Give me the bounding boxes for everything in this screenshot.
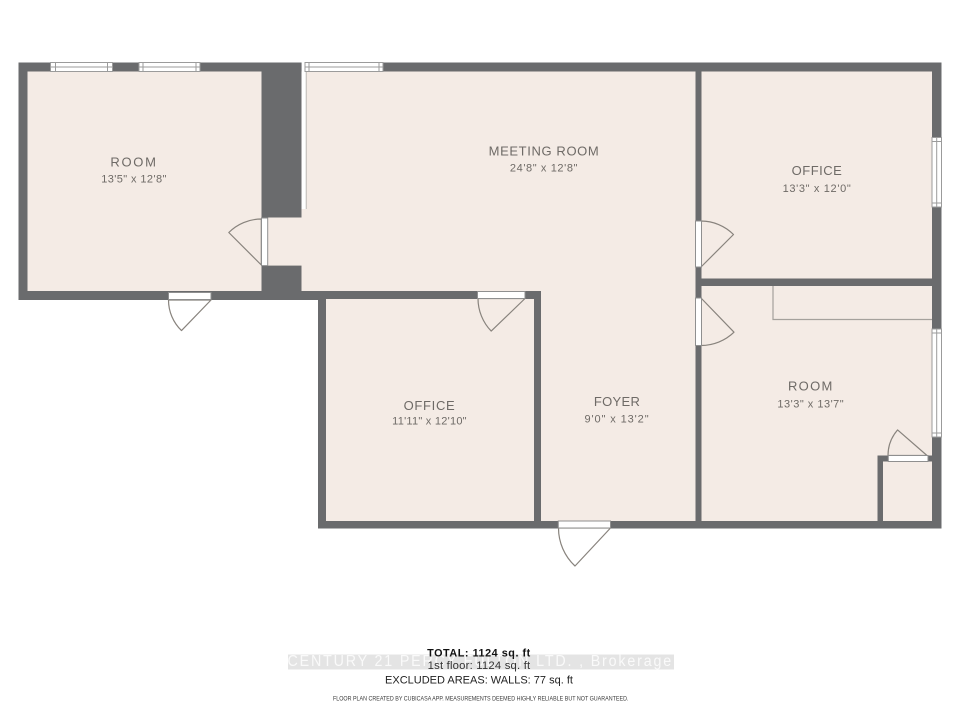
svg-text:13'5" x 12'8": 13'5" x 12'8" [101,173,167,185]
svg-text:OFFICE: OFFICE [792,163,843,178]
svg-text:11'11" x 12'10": 11'11" x 12'10" [392,415,467,427]
svg-text:TOTAL: 1124 sq. ft: TOTAL: 1124 sq. ft [427,647,531,659]
svg-text:ROOM: ROOM [788,379,834,394]
svg-text:ROOM: ROOM [110,155,157,170]
svg-text:24'8" x 12'8": 24'8" x 12'8" [510,162,578,174]
svg-text:MEETING ROOM: MEETING ROOM [489,143,600,158]
svg-text:FOYER: FOYER [594,394,640,409]
svg-text:FLOOR PLAN CREATED BY CUBICASA: FLOOR PLAN CREATED BY CUBICASA APP. MEAS… [333,696,629,703]
svg-text:EXCLUDED AREAS: WALLS: 77 sq.: EXCLUDED AREAS: WALLS: 77 sq. ft [385,675,573,687]
svg-text:13'3" x 12'0": 13'3" x 12'0" [783,183,852,195]
svg-text:13'3" x 13'7": 13'3" x 13'7" [777,399,844,411]
svg-text:1st floor: 1124 sq. ft: 1st floor: 1124 sq. ft [428,660,531,672]
svg-text:9'0" x 13'2": 9'0" x 13'2" [584,413,649,425]
svg-text:OFFICE: OFFICE [404,398,456,413]
